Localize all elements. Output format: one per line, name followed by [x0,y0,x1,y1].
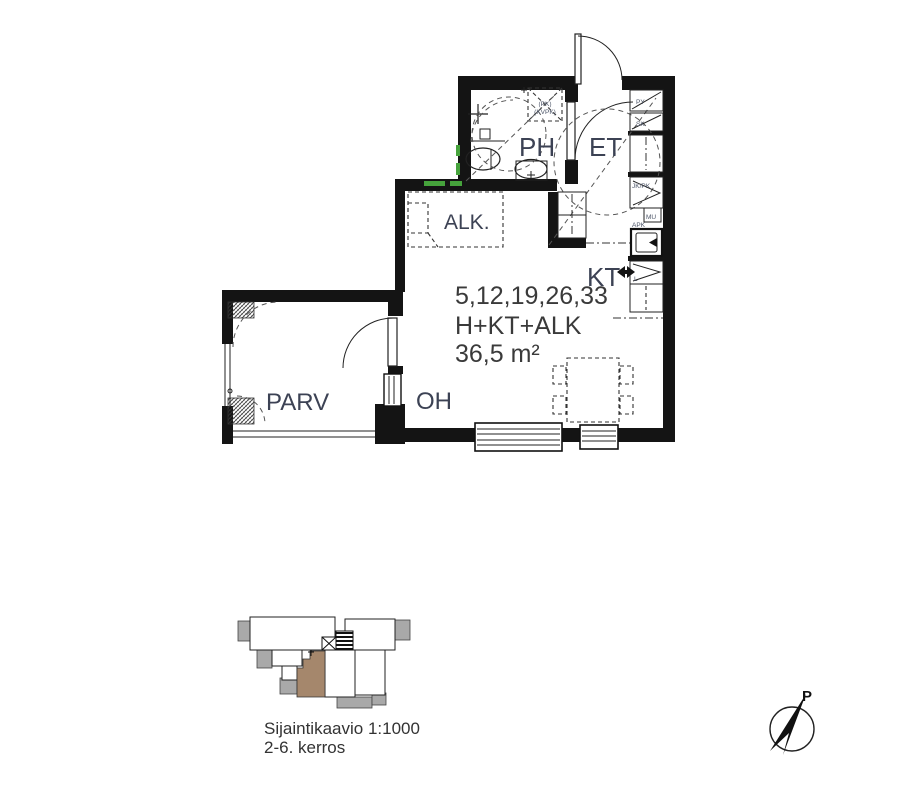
apartment-numbers: 5,12,19,26,33 [455,282,608,310]
label-py: PY [636,99,645,106]
label-laundry-2: (KVPK) [534,109,556,116]
living-room-window-small [580,425,618,449]
kitchen-sink-icon [631,229,662,256]
dining-chair [620,396,633,414]
label-apk: APK [632,222,646,229]
label-sk: SK [636,121,645,128]
hall-closet [558,192,586,238]
room-label-oh: OH [416,388,452,415]
dining-chair [553,366,566,384]
room-label-parv: PARV [266,389,329,416]
balcony-door [343,318,397,368]
dining-set [553,358,633,422]
balcony-wall-window [384,374,401,406]
apartment-area: 36,5 m² [455,340,540,368]
balcony-screen-bottom [228,398,254,424]
north-arrow-icon [770,694,806,755]
north-arrow: P [770,688,814,755]
label-l: L [634,276,638,283]
site-caption-floors: 2-6. kerros [264,738,345,757]
entrance-door [575,34,622,84]
balcony [225,302,375,437]
apartment-type: H+KT+ALK [455,312,582,340]
location-diagram: Sijaintikaavio 1:1000 2-6. kerros [238,617,420,757]
room-label-ph: PH [519,132,555,162]
dining-chair [553,396,566,414]
room-label-alk: ALK. [444,211,490,234]
north-label: P [802,688,812,705]
label-laundry-1: (PK) [539,101,552,108]
apartment-info: 5,12,19,26,33 H+KT+ALK 36,5 m² [455,282,608,368]
living-room-window-large [475,423,562,451]
balcony-screen-top [228,302,254,318]
site-caption-scale: Sijaintikaavio 1:1000 [264,719,420,738]
toilet-icon [466,148,500,170]
floor-plan-page: PH ET ALK. KT OH PARV PY SK JK/PK MU APK… [0,0,922,791]
dining-chair [620,366,633,384]
label-mu: MU [646,214,656,221]
floor-plan-canvas: PH ET ALK. KT OH PARV PY SK JK/PK MU APK… [0,0,922,791]
room-label-et: ET [589,132,622,162]
dining-table [567,358,619,422]
label-jkpk: JK/PK [632,183,651,190]
